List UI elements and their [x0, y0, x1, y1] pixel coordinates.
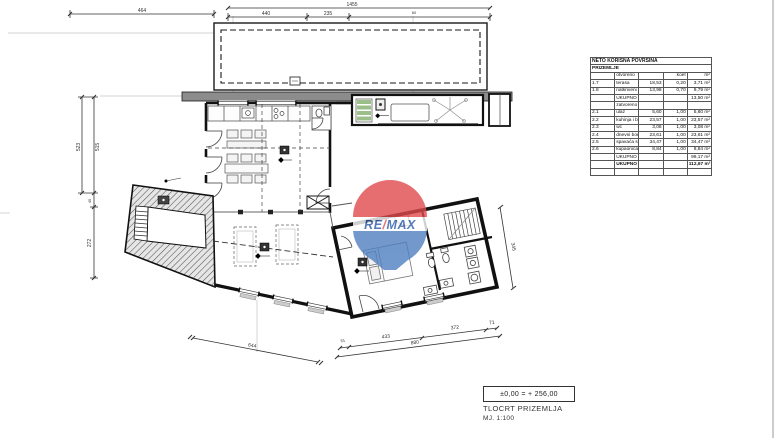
area-cell-coef: 0,70	[663, 87, 687, 94]
area-table-row	[591, 168, 712, 175]
area-cell-no	[591, 168, 615, 175]
area-cell-area	[639, 94, 663, 101]
dim-label: 45	[87, 198, 92, 203]
area-cell-name: wc	[615, 124, 639, 131]
area-cell-total: 23,61 m²	[687, 131, 711, 138]
level-marker	[255, 243, 270, 259]
area-cell-area: 3,08	[639, 124, 663, 131]
left-dimensions	[78, 95, 98, 280]
area-cell-no	[591, 102, 615, 109]
area-table-row: UKUPNO otvoreni prostori13,50 m²	[591, 94, 712, 101]
area-cell-total: 8,84 m²	[687, 146, 711, 153]
area-cell-no: 1.7	[591, 80, 615, 87]
elevation-box: ±0,00 = + 256,00	[483, 386, 575, 402]
area-cell-area: 23,57	[639, 117, 663, 124]
area-cell-coef	[663, 154, 687, 161]
area-table: NETO KORISNA POVRŠINA PRIZEMLJE otvoreno…	[590, 57, 712, 176]
stone-annex	[125, 178, 215, 287]
dim-label: 71	[489, 320, 495, 327]
area-cell-name: UKUPNO otvoreni prostori	[615, 94, 639, 101]
terrace-outline	[214, 23, 487, 90]
dim-label: 515	[95, 143, 101, 152]
area-cell-total: 34,47 m²	[687, 139, 711, 146]
area-table-row: 2.1ulaz5,601,005,60 m²	[591, 109, 712, 116]
area-cell-no: 2.4	[591, 131, 615, 138]
dim-label: 272	[87, 239, 93, 248]
elevation-value: ±0,00 = + 256,00	[500, 391, 558, 398]
area-cell-coef: 1,00	[663, 124, 687, 131]
washer	[468, 271, 481, 284]
kitchen-dining-room	[206, 101, 336, 215]
area-cell-area: 23,61	[639, 131, 663, 138]
area-table-floor: PRIZEMLJE	[591, 65, 712, 72]
top-dimensions	[68, 6, 492, 21]
window	[271, 294, 294, 307]
dim-label: 372	[450, 324, 459, 331]
area-table-row: UKUPNO - PRIZEMLJE112,67 m²	[591, 161, 712, 168]
area-cell-coef	[663, 94, 687, 101]
area-cell-name: kupaonica	[615, 146, 639, 153]
area-cell-coef: 1,00	[663, 109, 687, 116]
door-swing	[206, 131, 222, 199]
area-cell-area	[639, 72, 663, 79]
area-cell-area	[639, 102, 663, 109]
dim-label: 440	[262, 11, 271, 17]
dim-label: 523	[76, 143, 82, 152]
area-cell-no: 2.5	[591, 139, 615, 146]
remax-wordmark: RE/MAX	[364, 218, 416, 232]
dim-label: 345	[509, 242, 516, 251]
floor-plan-page: { "title_block": { "elevation": "±0,00 =…	[0, 0, 780, 438]
area-cell-no: 2.3	[591, 124, 615, 131]
dining-table	[225, 154, 268, 183]
window	[217, 101, 248, 106]
sofa-set	[227, 130, 266, 148]
area-cell-area	[639, 154, 663, 161]
area-cell-name: zatvoreno	[615, 102, 639, 109]
area-cell-coef: 1,00	[663, 146, 687, 153]
area-table-row: 1.7terasa18,530,203,71 m²	[591, 80, 712, 87]
kitchen-counter	[208, 106, 310, 121]
area-cell-area: 18,53	[639, 80, 663, 87]
area-cell-name: natkriveni prostor	[615, 87, 639, 94]
area-table-floor-row: PRIZEMLJE	[591, 65, 712, 72]
area-cell-total: m²	[687, 72, 711, 79]
area-cell-total: 112,67 m²	[687, 161, 711, 168]
area-table-row: 2.3wc3,081,003,08 m²	[591, 124, 712, 131]
area-cell-name: spavaća soba	[615, 139, 639, 146]
area-table-row: 1.8natkriveni prostor13,980,709,79 m²	[591, 87, 712, 94]
area-cell-total: 9,79 m²	[687, 87, 711, 94]
dim-label: 60	[412, 10, 417, 15]
area-cell-coef: 1,00	[663, 139, 687, 146]
area-cell-area: 5,60	[639, 109, 663, 116]
area-cell-coef	[663, 168, 687, 175]
drawing-title: TLOCRT PRIZEMLJA	[483, 404, 562, 413]
area-cell-name	[615, 168, 639, 175]
area-cell-no: 1.8	[591, 87, 615, 94]
area-cell-no	[591, 72, 615, 79]
area-cell-coef: 1,00	[663, 117, 687, 124]
area-cell-area	[639, 168, 663, 175]
area-cell-total	[687, 168, 711, 175]
area-cell-no	[591, 94, 615, 101]
dim-label: 51	[340, 338, 346, 344]
area-cell-name: UKUPNO - PRIZEMLJE	[615, 161, 639, 168]
window	[305, 301, 328, 314]
dim-label: 235	[324, 11, 333, 17]
area-cell-no	[591, 161, 615, 168]
area-cell-total: 5,60 m²	[687, 109, 711, 116]
dim-label: 880	[410, 339, 419, 346]
area-cell-name: terasa	[615, 80, 639, 87]
area-cell-area: 8,84	[639, 146, 663, 153]
area-cell-coef: 0,20	[663, 80, 687, 87]
area-table-title: NETO KORISNA POVRŠINA	[591, 58, 712, 65]
area-cell-total: 99,17 m²	[687, 154, 711, 161]
dim-label: 433	[381, 333, 390, 340]
window	[237, 287, 260, 300]
skylight-box	[307, 196, 329, 209]
area-cell-no: 2.2	[591, 117, 615, 124]
wc-room	[312, 106, 331, 130]
area-cell-name: UKUPNO zatvoreni prostori	[615, 154, 639, 161]
area-cell-coef: koef	[663, 72, 687, 79]
area-cell-no	[591, 154, 615, 161]
outdoor-table	[391, 104, 429, 121]
area-cell-name: ulaz	[615, 109, 639, 116]
area-table-row: 2.6kupaonica8,841,008,84 m²	[591, 146, 712, 153]
area-cell-total: 13,50 m²	[687, 94, 711, 101]
window	[255, 101, 296, 106]
area-cell-no: 2.1	[591, 109, 615, 116]
area-cell-area: 13,98	[639, 87, 663, 94]
area-cell-area	[639, 161, 663, 168]
area-cell-total	[687, 102, 711, 109]
covered-wing	[336, 95, 483, 125]
area-cell-name: kuhinja i blagovaonica	[615, 117, 639, 124]
roof-projection-dashed	[213, 241, 333, 257]
drawing-scale: MJ. 1:100	[483, 415, 514, 422]
area-cell-no: 2.6	[591, 146, 615, 153]
area-cell-total: 3,08 m²	[687, 124, 711, 131]
area-cell-total: 23,57 m²	[687, 117, 711, 124]
area-cell-coef: 1,00	[663, 131, 687, 138]
area-cell-name: otvoreno	[615, 72, 639, 79]
area-table-row: 2.5spavaća soba34,471,0034,47 m²	[591, 139, 712, 146]
area-cell-total: 3,71 m²	[687, 80, 711, 87]
level-marker	[278, 146, 292, 163]
area-table-row: zatvoreno	[591, 102, 712, 109]
area-table-row: otvorenokoefm²	[591, 72, 712, 79]
area-cell-name: dnevni boravak	[615, 131, 639, 138]
dim-label: 1455	[346, 2, 357, 8]
area-table-body: otvorenokoefm²1.7terasa18,530,203,71 m²1…	[591, 72, 712, 175]
balloon-top-red	[353, 180, 427, 217]
area-cell-coef	[663, 102, 687, 109]
area-table-title-row: NETO KORISNA POVRŠINA	[591, 58, 712, 65]
living-room	[213, 225, 352, 315]
area-table-row: 2.2kuhinja i blagovaonica23,571,0023,57 …	[591, 117, 712, 124]
dim-label: 464	[138, 8, 147, 14]
area-cell-coef	[663, 161, 687, 168]
area-table-row: UKUPNO zatvoreni prostori99,17 m²	[591, 154, 712, 161]
side-block	[489, 94, 510, 126]
area-table-row: 2.4dnevni boravak23,611,0023,61 m²	[591, 131, 712, 138]
area-cell-area: 34,47	[639, 139, 663, 146]
